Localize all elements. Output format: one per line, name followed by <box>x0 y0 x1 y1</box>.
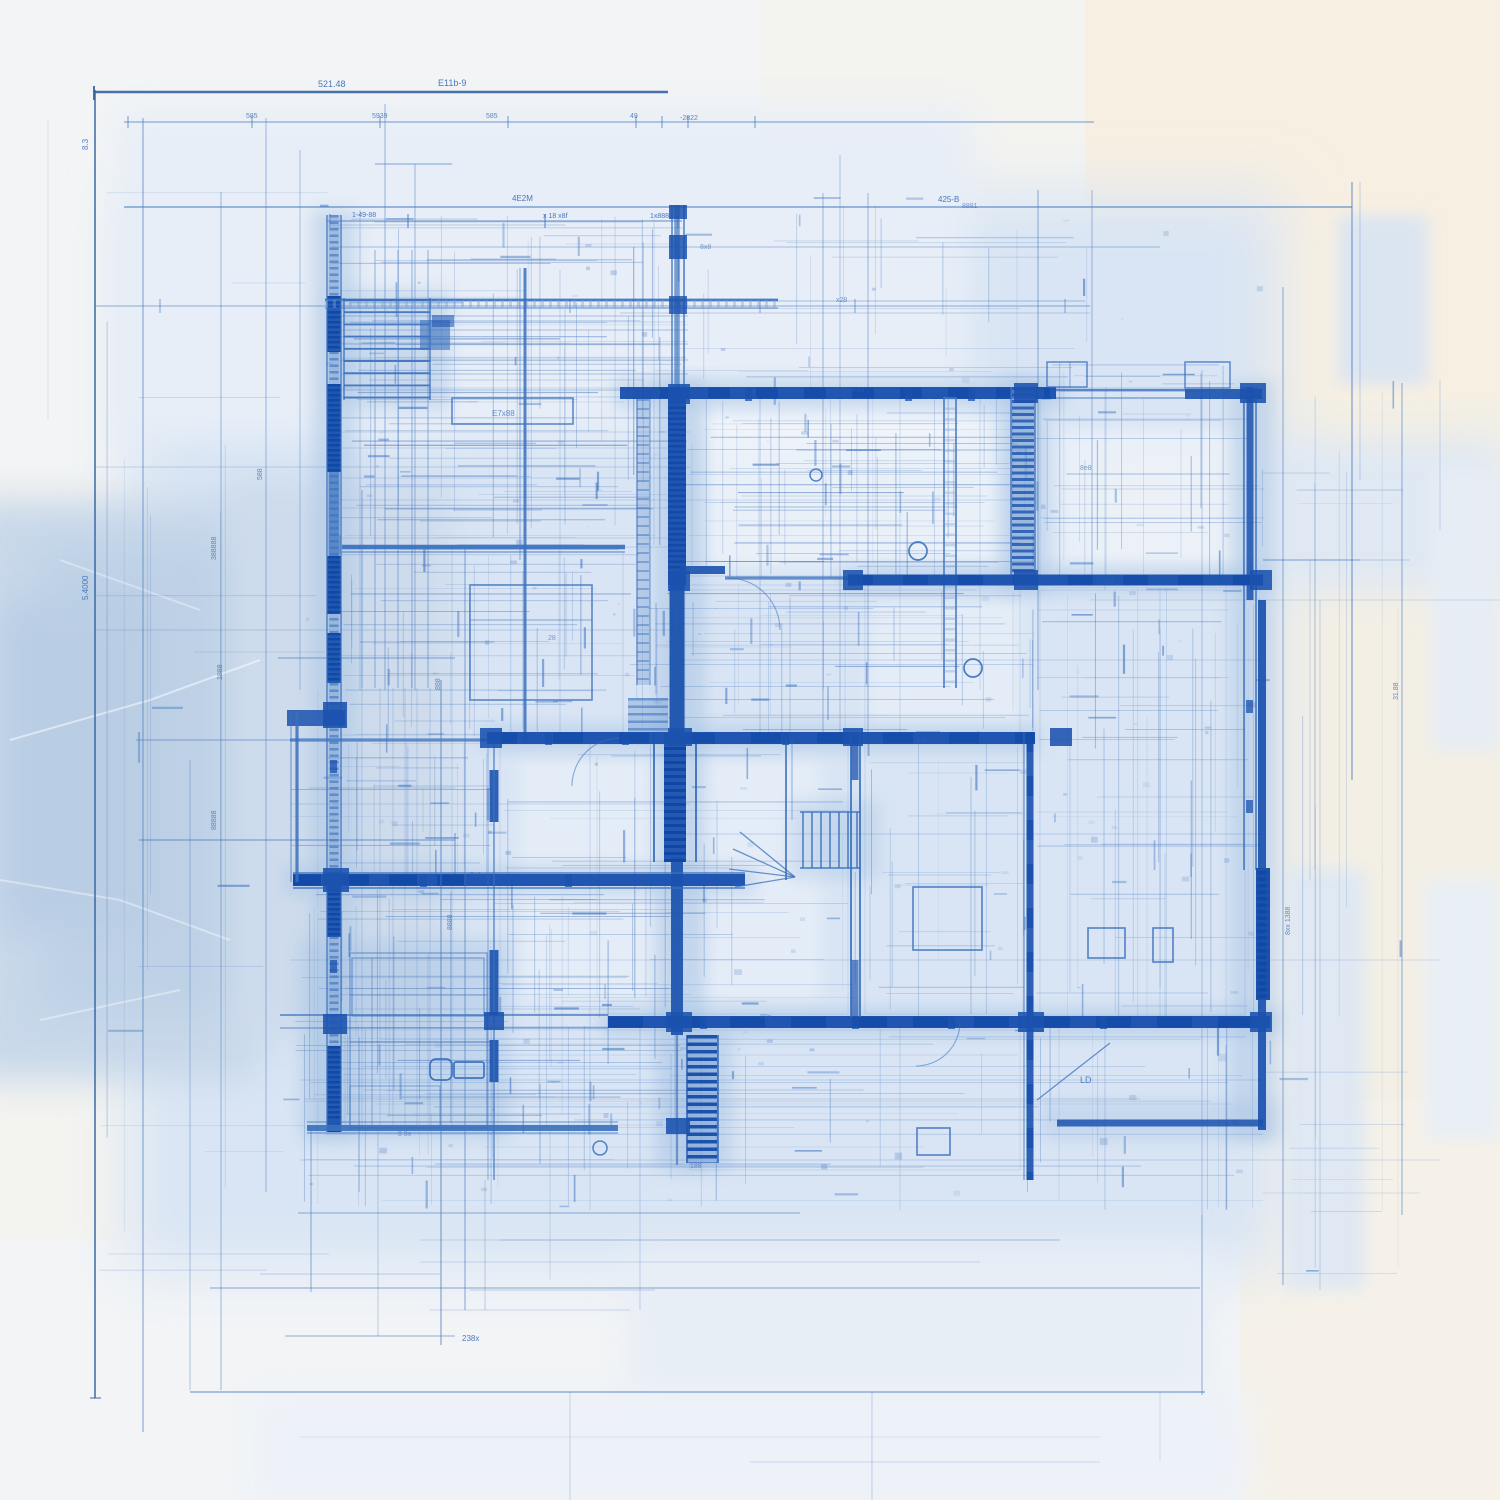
svg-text:4E2M: 4E2M <box>512 194 533 203</box>
svg-text:31.88: 31.88 <box>1393 682 1400 700</box>
svg-text:88888: 88888 <box>211 810 218 830</box>
svg-text:8xx 1388: 8xx 1388 <box>1285 906 1292 935</box>
svg-text:188: 188 <box>690 1163 702 1170</box>
svg-text:E88: E88 <box>852 387 865 394</box>
svg-text:8881: 8881 <box>962 203 978 210</box>
svg-text:585: 585 <box>486 113 498 120</box>
svg-text:1x888: 1x888 <box>650 213 669 220</box>
svg-text:8888: 8888 <box>447 914 454 930</box>
svg-text:388888: 388888 <box>211 537 218 560</box>
svg-text:425-B: 425-B <box>938 195 959 204</box>
svg-text:1888: 1888 <box>217 664 224 680</box>
svg-text:88s: 88s <box>760 1014 772 1021</box>
svg-text:8 8x: 8 8x <box>398 1131 412 1138</box>
svg-text:8-8: 8-8 <box>916 737 926 744</box>
svg-text:49: 49 <box>630 113 638 120</box>
svg-text:x88: x88 <box>1102 579 1113 586</box>
svg-text:E11b-9: E11b-9 <box>438 78 466 88</box>
svg-text:238x: 238x <box>462 1334 479 1343</box>
svg-text:LD: LD <box>1080 1075 1092 1085</box>
svg-text:588: 588 <box>257 468 264 480</box>
svg-text:8.3: 8.3 <box>81 138 90 150</box>
svg-text:5x1: 5x1 <box>470 872 481 879</box>
svg-text:E7x88: E7x88 <box>492 409 515 418</box>
svg-text:585: 585 <box>246 113 258 120</box>
svg-text:x28: x28 <box>836 297 847 304</box>
svg-text:x 18 x8f: x 18 x8f <box>543 213 568 220</box>
svg-text:8e8: 8e8 <box>1080 465 1092 472</box>
svg-text:1-49-88: 1-49-88 <box>352 212 376 219</box>
svg-text:5.4000: 5.4000 <box>81 575 90 600</box>
svg-text:-2822: -2822 <box>680 115 698 122</box>
svg-text:8x8: 8x8 <box>700 244 711 251</box>
svg-text:521.48: 521.48 <box>318 79 346 89</box>
svg-text:28: 28 <box>548 635 556 642</box>
